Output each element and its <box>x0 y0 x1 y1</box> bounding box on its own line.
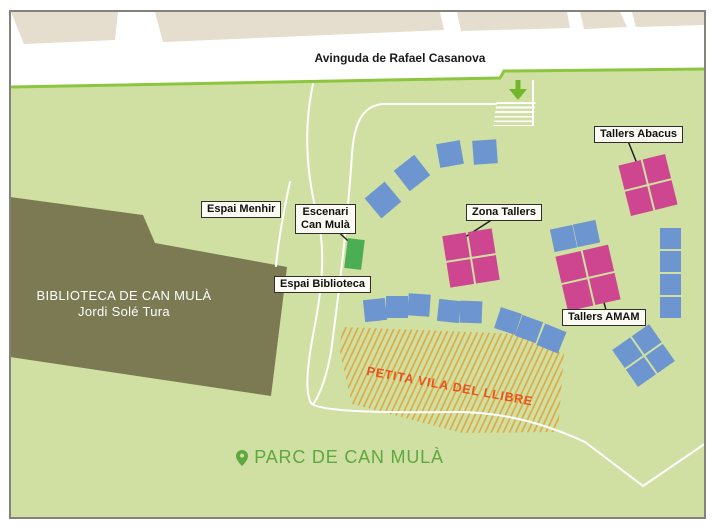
tent-blue <box>436 140 464 168</box>
tent-pink <box>618 160 646 190</box>
label-zona-tallers: Zona Tallers <box>466 204 542 221</box>
tent-pink <box>562 279 593 311</box>
tent-blue <box>472 139 498 165</box>
tent-pink <box>468 228 496 256</box>
tent-pink <box>472 255 500 283</box>
label-escenari-line2: Can Mulà <box>301 219 350 232</box>
street-name: Avinguda de Rafael Casanova <box>305 51 495 65</box>
label-tallers-abacus: Tallers Abacus <box>594 126 683 143</box>
tent-blue <box>407 293 430 316</box>
tent-pink <box>446 259 474 287</box>
event-map: Avinguda de Rafael Casanova BIBLIOTECA D… <box>0 0 718 531</box>
tent-cluster-zona-tallers <box>442 228 500 287</box>
label-escenari-line1: Escenari <box>301 206 350 219</box>
label-espai-biblioteca: Espai Biblioteca <box>274 276 371 293</box>
tent-blue <box>660 251 681 272</box>
label-espai-menhir: Espai Menhir <box>201 201 281 218</box>
stage-rect <box>344 238 365 270</box>
tent-blue <box>363 298 387 322</box>
location-pin-icon <box>236 450 248 466</box>
library-name-line1: BIBLIOTECA DE CAN MULÀ <box>23 288 225 304</box>
tent-pink <box>442 232 470 260</box>
tent-pink <box>555 251 586 283</box>
label-escenari-can-mula: Escenari Can Mulà <box>295 204 356 234</box>
label-tallers-amam: Tallers AMAM <box>562 309 646 326</box>
tent-blue <box>573 220 600 247</box>
crossing-stairs <box>493 102 535 126</box>
tent-blue <box>437 299 461 323</box>
tent-blue <box>386 296 408 318</box>
tent-blue <box>660 297 681 318</box>
library-name-line2: Jordi Solé Tura <box>23 304 225 320</box>
tent-blue <box>660 274 681 295</box>
library-name: BIBLIOTECA DE CAN MULÀ Jordi Solé Tura <box>23 288 225 321</box>
park-name: PARC DE CAN MULÀ <box>254 447 444 468</box>
tent-blue <box>460 301 483 324</box>
park-name-group: PARC DE CAN MULÀ <box>245 447 435 468</box>
tent-blue <box>660 228 681 249</box>
